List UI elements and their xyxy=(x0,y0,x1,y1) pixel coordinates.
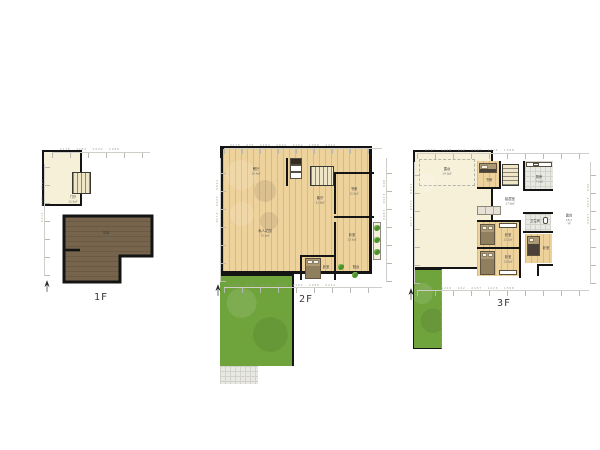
room-label: 卧室 13.8㎡ xyxy=(348,234,357,242)
dimension-line-right xyxy=(386,158,392,282)
room-label: 门厅 11.9㎡ xyxy=(69,196,78,204)
dimension-numbers-bottom: 3737 · 1226 · 302 · 2467 · 1226 · 1598 xyxy=(425,287,515,290)
floor-label-2f: 2F xyxy=(220,294,392,305)
room-label: 露台 15.7㎡ xyxy=(566,214,573,226)
plan-2f: 3475 · 275 · 1284 · 2940 · 2162 · 1388 ·… xyxy=(220,146,392,310)
plan-1f: 2775 · 1284 · 2940 · 1388 1590 · 3260 · … xyxy=(42,150,160,312)
room-label: 卧室 12.2㎡ xyxy=(504,234,513,242)
kitchen-counter xyxy=(526,162,552,167)
room-label: 书房 11.5㎡ xyxy=(350,188,359,196)
plan-3f: 3737 · 1226 · 302 · 2467 · 1226 · 1598 3… xyxy=(413,150,595,310)
interior-wall xyxy=(477,247,521,249)
dimension-line-top xyxy=(52,152,150,158)
bed xyxy=(480,251,495,275)
interior-wall xyxy=(477,187,501,189)
interior-wall xyxy=(334,172,336,214)
toilet xyxy=(543,217,548,224)
room-balcony xyxy=(220,366,258,384)
room-label: 书房 xyxy=(486,179,493,183)
dimension-numbers-left: 1590 · 3260 · 2140 xyxy=(215,180,218,223)
room-label: 厨房 7.2㎡ xyxy=(535,176,542,184)
dimension-numbers-right: 900 · 2460 · 1980 xyxy=(586,184,589,225)
dimension-line-right xyxy=(590,162,596,284)
sofa xyxy=(477,206,501,215)
staircase xyxy=(502,164,519,186)
room-label: 起居室 17.6㎡ xyxy=(505,198,515,206)
interior-wall xyxy=(523,212,553,214)
cabinet xyxy=(290,158,302,165)
bed xyxy=(305,258,321,279)
interior-wall xyxy=(523,231,553,233)
interior-wall xyxy=(523,189,553,191)
interior-wall xyxy=(334,216,374,218)
building-notch xyxy=(537,264,553,276)
dimension-line-left xyxy=(44,164,50,276)
room-label: 卧室 xyxy=(323,266,330,270)
bed xyxy=(479,163,497,173)
dimension-numbers-left: 1590 · 3260 · 1140 xyxy=(40,180,43,223)
interior-wall xyxy=(523,161,525,191)
floor-label-3f: 3F xyxy=(413,298,595,309)
room-garage xyxy=(62,214,156,286)
room-label: 餐厅 19.4㎡ xyxy=(252,168,261,176)
tree-canopy xyxy=(230,202,254,226)
room-label: 卧室 13.5㎡ xyxy=(504,256,513,264)
dimension-numbers-left: 1590 · 3260 · 2140 xyxy=(409,184,412,227)
dimension-numbers-top: 3475 · 275 · 1284 · 2940 · 2162 · 1388 ·… xyxy=(230,144,336,147)
plant-icon xyxy=(352,272,358,278)
interior-wall xyxy=(300,255,302,280)
interior-wall xyxy=(519,220,521,278)
interior-wall xyxy=(336,172,374,174)
cabinet xyxy=(290,165,302,172)
room-label: 卧室 xyxy=(543,247,550,251)
wardrobe xyxy=(499,223,517,228)
room-label: 客厅 31.8㎡ xyxy=(316,197,325,205)
staircase xyxy=(310,166,334,186)
floorplan-canvas: 2775 · 1284 · 2940 · 1388 1590 · 3260 · … xyxy=(0,0,600,450)
dimension-line-bottom xyxy=(417,290,589,296)
interior-wall xyxy=(334,222,336,280)
room-label: 车库 40.2㎡ xyxy=(102,232,111,240)
tree-canopy xyxy=(260,212,278,230)
room-label: 私人花园 72.6㎡ xyxy=(258,230,271,238)
dimension-numbers-right: 900 · 2460 · 1980 xyxy=(382,180,385,221)
room-label: 阳台 xyxy=(353,266,360,270)
interior-wall xyxy=(477,220,521,222)
dimension-numbers-bottom: 3475 · 275 · 1284 · 2940 · 2162 · 1388 ·… xyxy=(230,284,336,287)
sink xyxy=(533,163,539,166)
dimension-numbers-top: 2775 · 1284 · 2940 · 1388 xyxy=(60,148,120,151)
dimension-line-top xyxy=(224,148,382,154)
room-label: 露台 14.3㎡ xyxy=(443,168,452,176)
bed xyxy=(480,224,495,245)
floor-label-1f: 1F xyxy=(42,292,160,303)
bed xyxy=(527,236,540,256)
wardrobe xyxy=(499,270,517,275)
tree-canopy xyxy=(417,174,435,192)
staircase xyxy=(72,172,91,194)
interior-wall xyxy=(286,158,288,186)
cabinet xyxy=(290,172,302,179)
room-label: 卫生间 xyxy=(530,220,540,224)
interior-wall xyxy=(300,255,334,257)
tree-canopy xyxy=(254,180,276,202)
interior-wall xyxy=(499,161,501,187)
dimension-line-bottom xyxy=(224,287,382,293)
dimension-numbers-top: 3737 · 1226 · 302 · 2467 · 1226 · 1598 xyxy=(425,149,515,152)
